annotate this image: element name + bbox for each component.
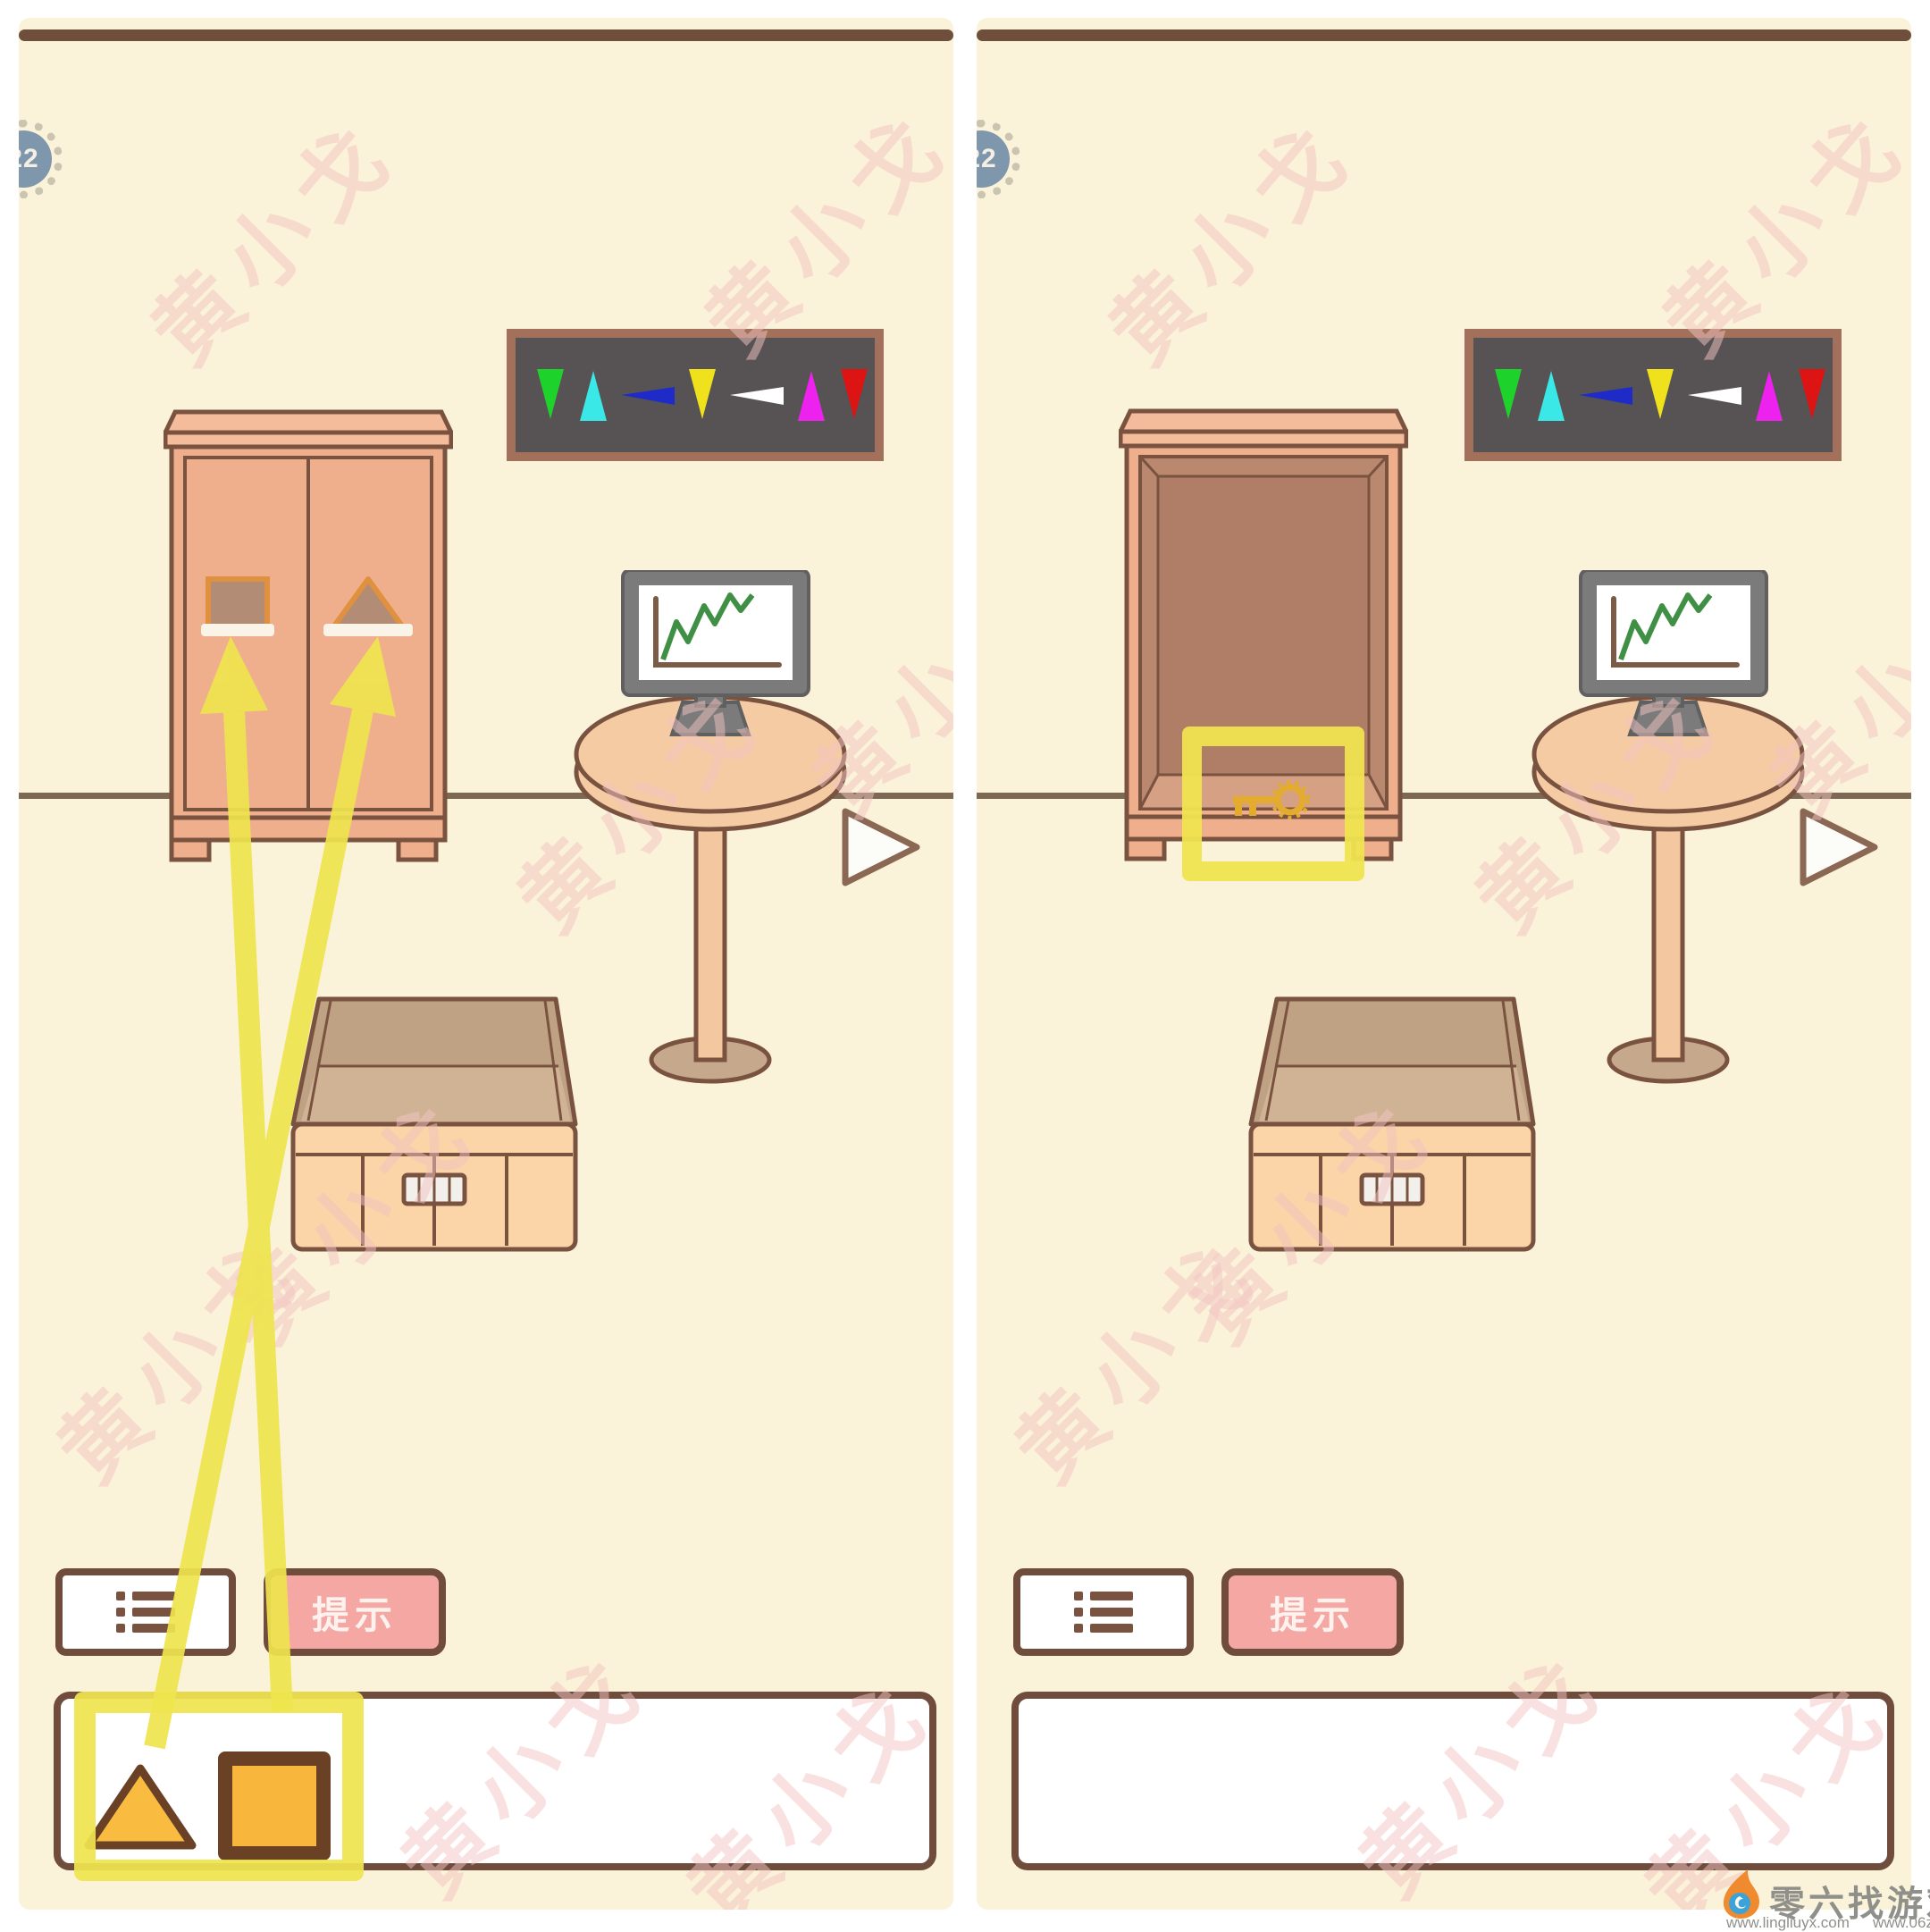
top-border-line [19, 29, 953, 41]
play-arrow-button[interactable] [838, 804, 924, 890]
storage-box[interactable] [1248, 996, 1536, 1256]
list-icon [116, 1592, 175, 1633]
cone-left-icon [619, 369, 676, 421]
menu-button[interactable] [55, 1568, 236, 1656]
watermark-text: 黄小戈 [999, 1221, 1279, 1500]
site-url: www.06zyx.com [1873, 1914, 1930, 1931]
site-urls: www.lingliuyx.comwww.06zyx.com [1726, 1914, 1930, 1932]
cone-left-icon [728, 369, 785, 421]
hint-button-label: 提示 [312, 1585, 398, 1640]
play-arrow-icon [1803, 811, 1875, 883]
box-floor [301, 1066, 571, 1121]
cone-down-icon [1491, 369, 1525, 421]
play-arrow-button[interactable] [1796, 804, 1882, 890]
cone-left-icon [1577, 369, 1634, 421]
watermark-text: 黄小戈 [135, 103, 415, 382]
colored-cones-board [507, 329, 884, 461]
wardrobe-square-slot[interactable] [208, 579, 267, 631]
hint-button[interactable]: 提示 [1221, 1568, 1404, 1656]
top-border-line [977, 29, 1911, 41]
computer-table-group [574, 570, 847, 1088]
cone-up-icon [794, 369, 828, 421]
wardrobe-foot [172, 840, 209, 860]
site-watermark: 零六找游戏 www.lingliuyx.comwww.06zyx.com [1721, 1869, 1762, 1919]
square-slot-opening [201, 624, 274, 636]
cone-down-icon [837, 369, 871, 421]
cone-down-icon [533, 369, 567, 421]
table-leg [696, 820, 725, 1060]
watermark-text: 黄小戈 [1093, 103, 1372, 382]
cone-left-icon [1686, 369, 1743, 421]
level-number: 22 [977, 144, 997, 174]
play-arrow-icon [845, 811, 917, 883]
game-panel-step2: 22 黄小戈 黄小戈 黄小戈 黄小戈 黄小戈 黄小戈 黄小戈 黄小戈 [977, 18, 1911, 1910]
cone-up-icon [576, 369, 610, 421]
table-leg [1654, 820, 1682, 1060]
wardrobe-closed[interactable] [164, 409, 453, 878]
flame-logo-icon [1721, 1869, 1762, 1919]
triangle-slot-opening [323, 624, 413, 636]
level-number: 22 [19, 144, 39, 174]
inventory-highlight-annotation [74, 1692, 364, 1881]
cone-down-icon [1795, 369, 1829, 421]
list-icon [1074, 1592, 1133, 1633]
storage-box[interactable] [290, 996, 578, 1256]
key-highlight-annotation [1182, 727, 1364, 881]
cone-up-icon [1534, 369, 1568, 421]
menu-button[interactable] [1013, 1568, 1194, 1656]
wardrobe-foot [399, 840, 436, 860]
game-panel-step1: 22 黄小戈 黄小戈 黄小戈 黄小戈 黄小戈 黄小戈 黄小戈 黄小戈 [19, 18, 953, 1910]
cone-down-icon [685, 369, 719, 421]
computer-table-group [1531, 570, 1805, 1088]
watermark-text: 黄小戈 [41, 1221, 321, 1500]
hint-button[interactable]: 提示 [264, 1568, 446, 1656]
box-floor [1259, 1066, 1529, 1121]
wardrobe-foot [1127, 839, 1164, 859]
colored-cones-board [1464, 329, 1842, 461]
inventory-bar[interactable] [1011, 1692, 1894, 1870]
walkthrough-screenshot: { "badge": { "level": "22" }, "buttons":… [0, 0, 1930, 1930]
cone-up-icon [1752, 369, 1786, 421]
cone-down-icon [1643, 369, 1677, 421]
hint-button-label: 提示 [1270, 1585, 1355, 1640]
level-badge: 22 [977, 120, 1020, 198]
level-badge: 22 [19, 120, 63, 198]
site-url: www.lingliuyx.com [1726, 1914, 1850, 1931]
